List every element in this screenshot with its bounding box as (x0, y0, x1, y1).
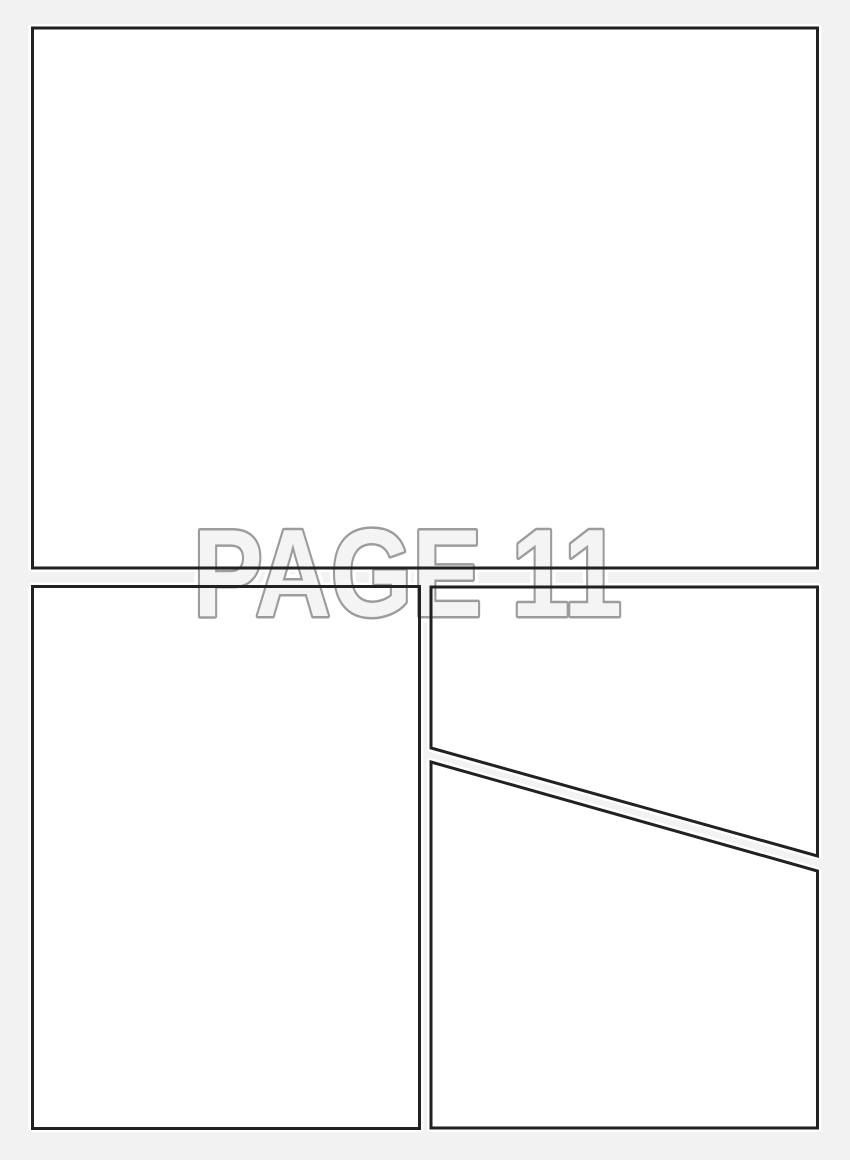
page-watermark: PAGE 11 PAGE 11 (193, 505, 622, 643)
bottom-left-panel-fill (33, 587, 420, 1129)
comic-page-canvas: PAGE 11 PAGE 11 (0, 0, 850, 1160)
comic-page-template: PAGE 11 PAGE 11 (0, 0, 850, 1160)
page-number-watermark: PAGE 11 (193, 505, 622, 643)
top-full-width-panel-fill (33, 28, 818, 568)
